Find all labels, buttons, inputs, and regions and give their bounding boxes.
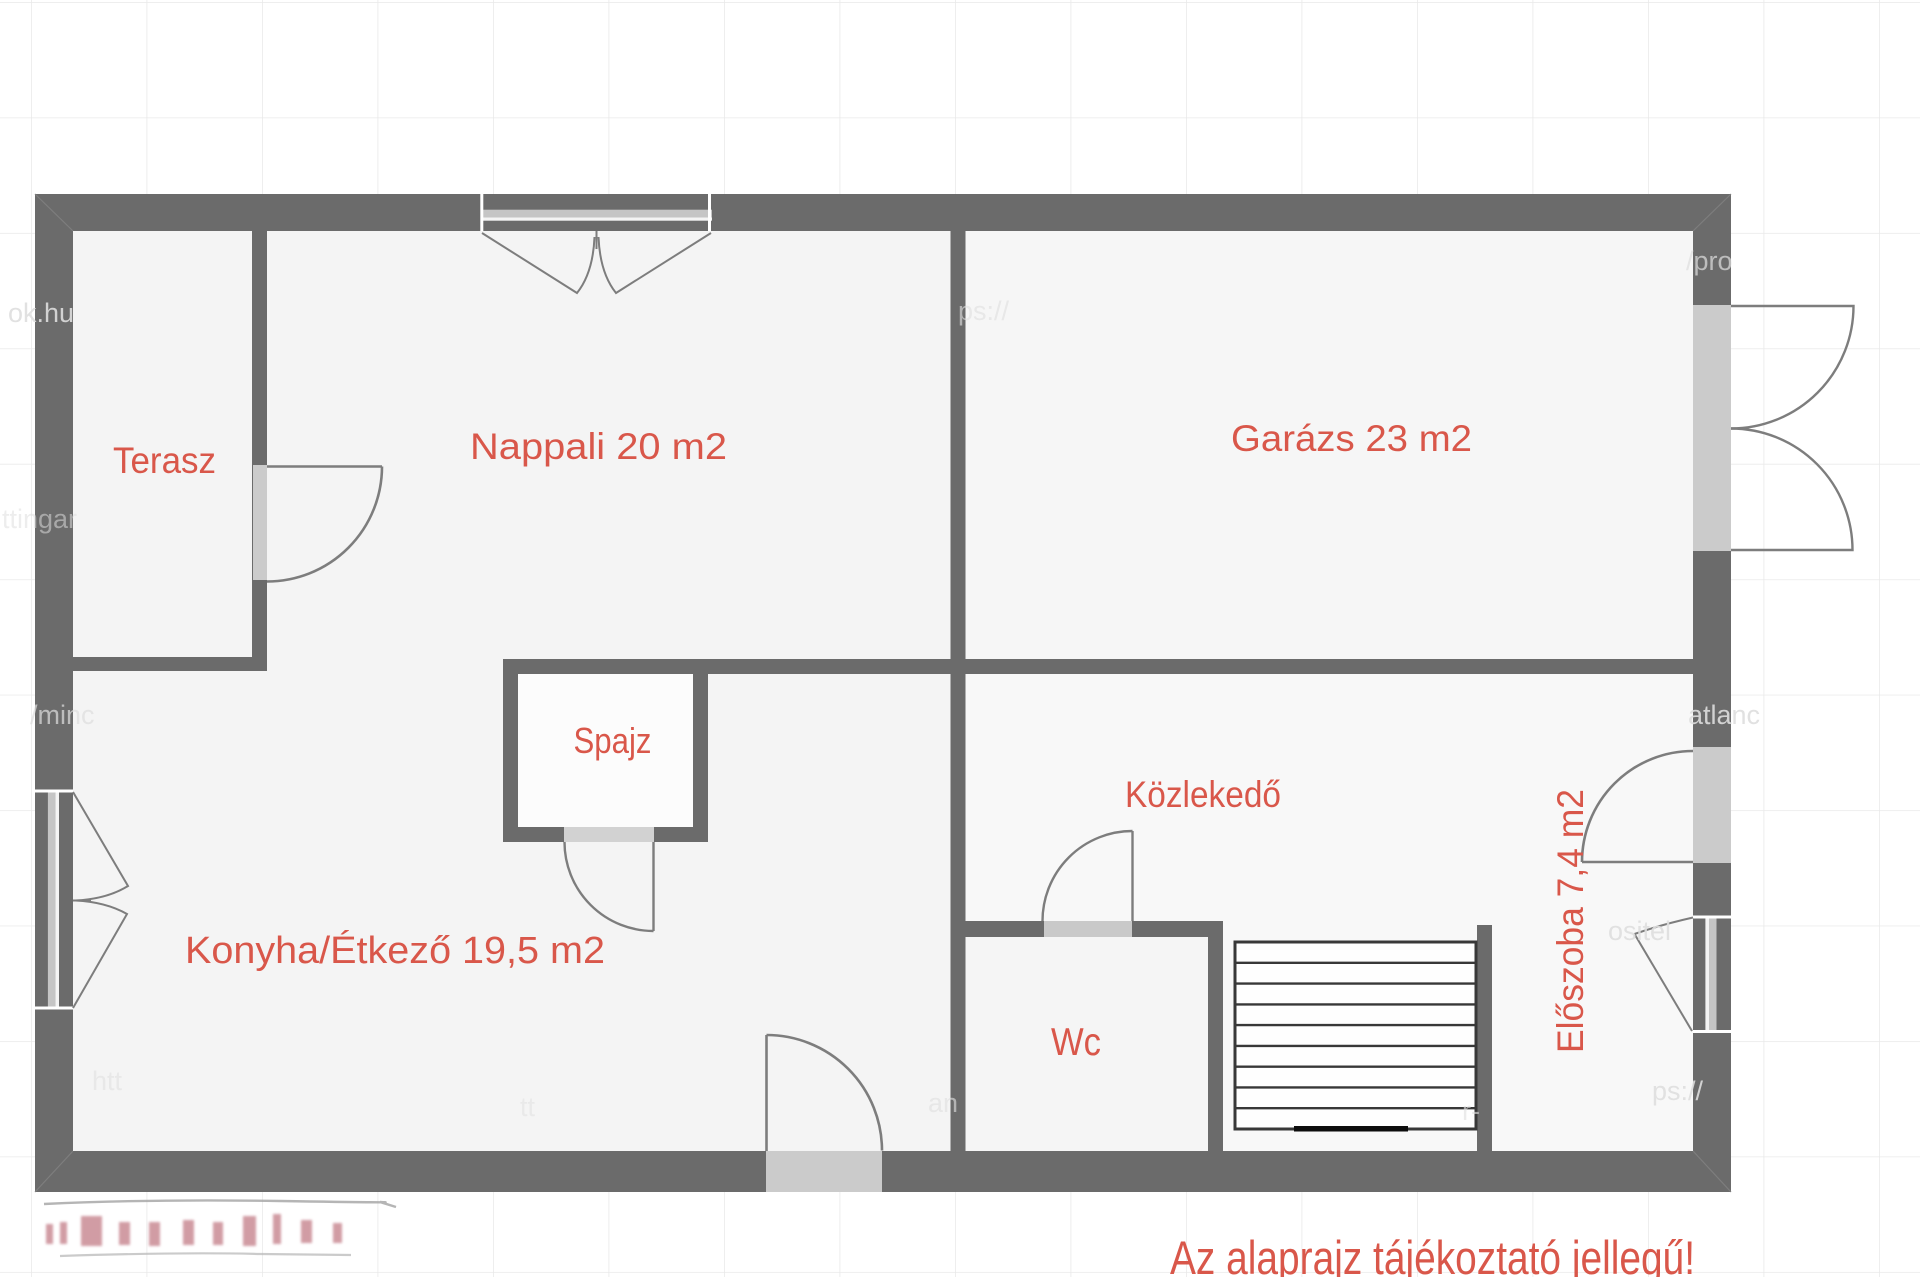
svg-text:r-: r- [1462, 1096, 1480, 1126]
svg-text:atlanc: atlanc [1688, 700, 1760, 730]
svg-text:Közlekedő: Közlekedő [1125, 774, 1281, 815]
svg-text:Terasz: Terasz [113, 440, 216, 481]
svg-text:Nappali 20 m2: Nappali 20 m2 [470, 426, 727, 467]
svg-text:tt: tt [520, 1092, 536, 1122]
svg-text:Az alaprajz tájékoztató jelleg: Az alaprajz tájékoztató jellegű! [1170, 1231, 1695, 1277]
svg-text:ositel: ositel [1608, 916, 1671, 946]
svg-text:Wc: Wc [1051, 1021, 1101, 1064]
svg-text:Konyha/Étkező 19,5 m2: Konyha/Étkező 19,5 m2 [185, 929, 605, 972]
svg-text:Garázs 23 m2: Garázs 23 m2 [1231, 418, 1472, 459]
svg-text:Előszoba 7,4 m2: Előszoba 7,4 m2 [1550, 789, 1591, 1053]
svg-text:ps://: ps:// [958, 296, 1010, 326]
svg-text:/minc: /minc [30, 700, 95, 730]
svg-text:an: an [928, 1088, 958, 1118]
svg-text:Spajz: Spajz [574, 720, 652, 761]
svg-text:ps://: ps:// [1652, 1076, 1704, 1106]
svg-text:ok.hu: ok.hu [8, 298, 74, 328]
svg-text:htt: htt [92, 1066, 123, 1096]
svg-text:ttingar: ttingar [2, 504, 77, 534]
svg-text:/pro: /pro [1686, 246, 1733, 276]
